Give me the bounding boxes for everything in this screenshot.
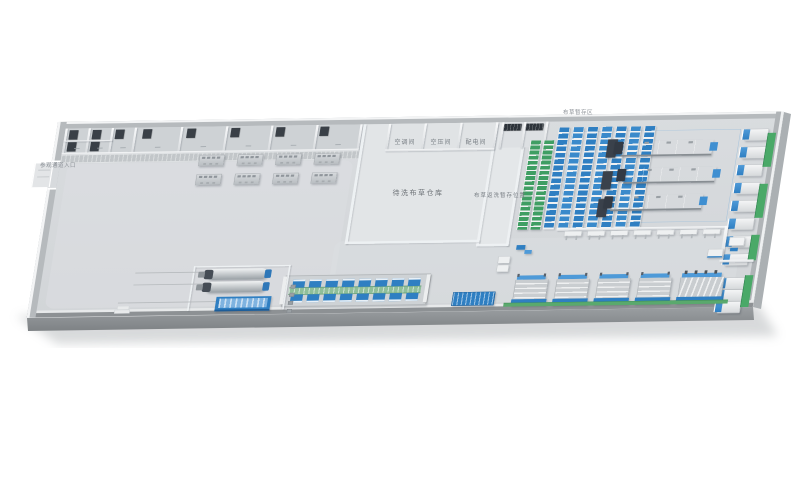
workstation-stool [325, 161, 328, 163]
electrical-cabinet [503, 124, 522, 131]
workstation-stool [331, 161, 334, 163]
factory-3d-layout: 参观通道入口 布草暂存区 空调间 空压间 配电间 待洗布草仓库 布草返洗暂存位置 [0, 0, 800, 480]
workstation-stool [242, 163, 245, 165]
rewash-area-label: 布草返洗暂存位置 [460, 193, 540, 200]
workstation-unit [322, 155, 326, 157]
cylinder-machine-body [206, 268, 269, 280]
ironer-post [684, 271, 687, 274]
tunnel-dryer-vent [691, 168, 696, 170]
cell-post [286, 309, 292, 313]
assembly-station [342, 279, 355, 287]
workstation-unit [289, 155, 293, 157]
ironer-post [704, 270, 707, 273]
workstation-unit [314, 174, 318, 176]
assembly-station [356, 293, 369, 301]
assembly-station [339, 294, 352, 302]
ironer-body [512, 279, 548, 299]
ironer-post [544, 273, 547, 276]
assembly-station [306, 294, 319, 302]
side-room-box [728, 237, 745, 246]
workstation-stool [319, 161, 322, 163]
washer-extractor-door [733, 183, 742, 193]
office-door-dark [142, 129, 152, 138]
workstation-unit [319, 174, 323, 176]
ironer-post [585, 273, 588, 276]
entrance-jamb [47, 188, 56, 190]
ironer-post [558, 273, 561, 276]
workstation-stool [251, 181, 254, 183]
workstation-stool [200, 182, 203, 184]
workstation-unit [240, 156, 244, 158]
office-floor-mark [120, 147, 126, 148]
tunnel-dryer-vent [669, 169, 674, 171]
cylinder-machine-port [264, 269, 272, 278]
workstation-stool [203, 163, 206, 165]
tunnel-dryer-vent [644, 142, 649, 144]
ironer-post [517, 274, 520, 277]
office-door-dark [230, 128, 240, 137]
office-door-dark [68, 130, 78, 139]
cylinder-machine-funnel [198, 272, 206, 278]
workstation-unit [242, 175, 246, 177]
assembly-station [389, 293, 402, 301]
office-door-dark [275, 127, 285, 136]
workstation-stool [239, 182, 242, 184]
workstation-unit [327, 155, 331, 157]
office-door-dark [186, 128, 196, 137]
workstation-unit [204, 176, 208, 178]
ironer-body [677, 277, 724, 297]
office-door-dark [91, 130, 101, 139]
glass-wall [476, 243, 509, 246]
ironer-post [626, 272, 629, 275]
workstation-unit [332, 155, 336, 157]
workstation-unit [291, 175, 295, 177]
side-room-box-blue [730, 248, 738, 252]
tunnel-dryer-control [699, 197, 708, 206]
cell-post [288, 301, 294, 305]
workstation-unit [214, 176, 218, 178]
workstation-stool [206, 182, 209, 184]
assembly-station [309, 279, 322, 287]
workstation-unit [276, 175, 280, 177]
tunnel-dryer-vent [647, 169, 652, 171]
workstation-unit [209, 176, 213, 178]
workstation-unit [207, 157, 211, 159]
office-floor-mark [155, 147, 161, 148]
utility-room-label-power: 配电间 [459, 139, 493, 146]
utility-room-label-compressor: 空压间 [424, 139, 458, 146]
workstation-unit [247, 175, 251, 177]
entry-step [114, 310, 130, 314]
tunnel-dryer-control [712, 169, 721, 178]
workstation-unit [281, 175, 285, 177]
ironer-post [641, 272, 644, 275]
tunnel-dryer-vent [688, 141, 693, 143]
office-floor-mark [291, 145, 297, 146]
workstation-unit [294, 155, 298, 157]
utility-room-label-ac: 空调间 [388, 139, 422, 146]
ironer-body [554, 279, 590, 299]
cell-post [290, 285, 296, 289]
assembly-station [358, 279, 371, 287]
storage-area-label: 布草暂存区 [546, 110, 610, 117]
workstation-stool [328, 180, 331, 182]
entrance-step [37, 176, 49, 177]
workstation-stool [283, 181, 286, 183]
assembly-station [405, 293, 418, 301]
electrical-cabinet [525, 123, 544, 130]
workstation-unit [284, 156, 288, 158]
workstation-unit [202, 157, 206, 159]
tunnel-dryer-vent [634, 196, 639, 198]
office-floor-mark [200, 146, 206, 147]
office-floor-mark [246, 145, 252, 146]
office-door-dark [115, 130, 125, 139]
workstation-unit [199, 176, 203, 178]
workstation-stool [277, 181, 280, 183]
warehouse-label: 待洗布草仓库 [380, 190, 456, 197]
storage-white-box [496, 265, 509, 272]
workstation-stool [209, 163, 212, 165]
workstation-stool [289, 181, 292, 183]
workstation-stool [316, 181, 319, 183]
assembly-station [375, 278, 388, 286]
ironer-body [595, 278, 631, 298]
office-door-dark [66, 142, 76, 151]
office-floor-mark [74, 148, 80, 149]
workstation-unit [317, 155, 321, 157]
office-door-dark [319, 127, 329, 136]
washer-extractor-door [735, 165, 744, 175]
tunnel-dryer-vent [666, 141, 671, 143]
office-floor-mark [335, 144, 341, 145]
workstation-unit [252, 175, 256, 177]
entrance-label: 参观通道入口 [14, 163, 76, 170]
workstation-unit [286, 175, 290, 177]
workstation-stool [248, 162, 251, 164]
ironer-post [714, 270, 717, 273]
workstation-unit [237, 175, 241, 177]
washer-extractor-door [727, 219, 736, 229]
storage-blue-box [516, 245, 526, 250]
cell-post [289, 293, 295, 297]
ironer-post [667, 272, 670, 275]
workstation-unit [329, 174, 333, 176]
washer-extractor-door [741, 129, 750, 139]
tunnel-dryer-vent [656, 196, 661, 198]
workstation-unit [255, 156, 259, 158]
tunnel-dryer-control [709, 142, 718, 151]
workstation-stool [212, 182, 215, 184]
workstation-unit [245, 156, 249, 158]
press-machine-deck [218, 298, 268, 308]
assembly-station [391, 278, 404, 286]
ironer-body [636, 278, 672, 298]
assembly-station [408, 278, 421, 286]
workstation-stool [292, 162, 295, 164]
workstation-unit [217, 157, 221, 159]
workstation-unit [279, 156, 283, 158]
workstation-stool [254, 162, 257, 164]
ironer-post [694, 270, 697, 273]
side-room-wall [719, 259, 754, 262]
assembly-station [325, 279, 338, 287]
workstation-unit [250, 156, 254, 158]
assembly-station [323, 294, 336, 302]
workstation-unit [212, 157, 216, 159]
washer-extractor-door [730, 201, 739, 211]
cylinder-machine-funnel [196, 284, 204, 290]
storage-blue-box [524, 250, 532, 254]
office-floor-mark [97, 148, 103, 149]
ironer-post [600, 273, 603, 276]
spreader-feeder [451, 292, 496, 306]
workstation-stool [245, 182, 248, 184]
workstation-stool [215, 163, 218, 165]
workstation-unit [324, 174, 328, 176]
office-door-dark [90, 142, 100, 151]
workstation-stool [286, 162, 289, 164]
cylinder-machine-body [204, 281, 267, 293]
cylinder-machine-port [262, 282, 270, 291]
tunnel-dryer-vent [678, 196, 683, 198]
workstation-stool [322, 180, 325, 182]
assembly-station [372, 293, 385, 301]
workstation-stool [280, 162, 283, 164]
storage-white-box [497, 256, 510, 263]
white-machine [707, 249, 724, 258]
